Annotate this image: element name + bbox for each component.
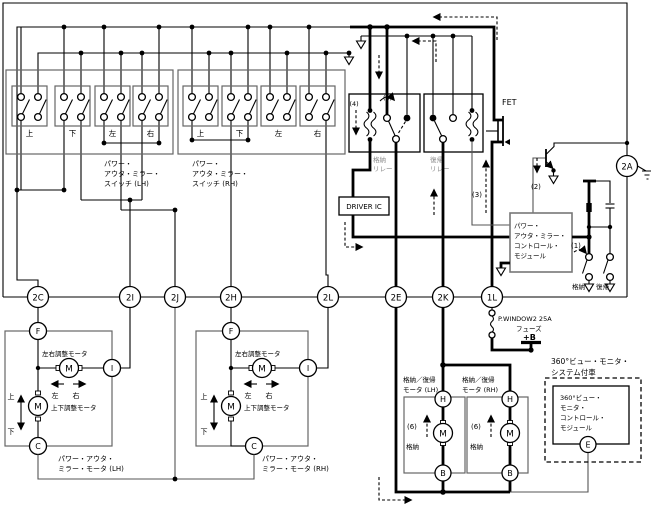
ret-lh-motor-symbol: M — [439, 430, 447, 440]
monitor-terminal-e: E — [585, 441, 590, 450]
store-return-switch-circuit: (1) 格納 復帰 — [571, 181, 615, 292]
mirror-lh-ud-label: 上下調整モータ — [51, 403, 97, 412]
mirror-rh-ud-label: 上下調整モータ — [244, 403, 290, 412]
module-name-1: パワー・ — [514, 222, 540, 230]
power-outer-mirror-wiring-diagram: 上 下 左 右 パワー・ アウタ・ミラー・ スイッチ (LH) 上 下 左 右 … — [0, 0, 651, 507]
mirror-rh-terminal-c: C — [251, 442, 257, 451]
wiring-diagram-page: 上 下 左 右 パワー・ アウタ・ミラー・ スイッチ (LH) 上 下 左 右 … — [0, 0, 651, 507]
swrh-right-label: 右 — [314, 128, 322, 138]
connector-2h: 2H — [225, 294, 237, 304]
plus-b-label: +B — [523, 333, 536, 342]
transistor-circuit: (2) — [531, 141, 629, 213]
mirror-rh-lr-motor-symbol: M — [258, 365, 266, 375]
annotation-3: (3) — [472, 191, 482, 199]
connector-2k: 2K — [438, 294, 449, 304]
swlh-right-label: 右 — [147, 128, 155, 138]
fet-circuit: FET — [486, 98, 517, 310]
annotation-6-lh: (6) — [407, 423, 417, 431]
mirror-lh-left-label: 左 — [52, 391, 59, 400]
ret-rh-motor-symbol: M — [506, 430, 514, 440]
swlh-name-3: スイッチ (LH) — [104, 180, 149, 188]
mirror-lh-name-1: パワー・アウタ・ — [58, 454, 114, 463]
swlh-name-1: パワー・ — [104, 160, 132, 168]
swlh-down-label: 下 — [69, 129, 77, 138]
store-switch-label: 格納 — [572, 282, 585, 291]
fuse-type-label: フューズ — [516, 324, 542, 333]
fet-label: FET — [502, 98, 517, 107]
power-outer-mirror-switch-lh: 上 下 左 右 パワー・ アウタ・ミラー・ スイッチ (LH) — [6, 70, 173, 188]
mirror-lh-terminal-i: I — [111, 364, 113, 373]
return-relay-label-1: 復帰 — [430, 155, 444, 164]
store-relay: (4) (5) 格納 リレー — [349, 94, 420, 173]
monitor-name-1: 360°ビュー・ — [560, 393, 602, 402]
monitor-name-2: モニタ・ — [560, 403, 586, 412]
connector-2e: 2E — [391, 294, 402, 304]
mirror-rh-up-label: 上 — [201, 392, 208, 401]
power-outer-mirror-switch-rh: 上 下 左 右 パワー・ アウタ・ミラー・ スイッチ (RH) — [178, 70, 345, 188]
store-return-motor-lh: H M B (6) 格納 格納／復帰 モータ (LH) — [403, 375, 465, 481]
connector-2c: 2C — [32, 294, 43, 304]
power-outer-mirror-motor-lh: M M F I C 左右調整モータ 左 右 上下調整モータ 上 下 パワー・アウ… — [5, 308, 130, 474]
monitor-name-4: モジュール — [560, 424, 593, 432]
mirror-lh-down-label: 下 — [8, 428, 15, 436]
connector-2i: 2I — [126, 294, 134, 304]
ret-rh-name-2: モータ (RH) — [462, 385, 498, 394]
monitor-note-2: システム付車 — [551, 367, 596, 377]
driver-ic: DRIVER IC — [339, 197, 389, 215]
mirror-lh-name-2: ミラー・モータ (LH) — [58, 464, 124, 473]
swrh-name-3: スイッチ (RH) — [192, 180, 238, 188]
swrh-name-2: アウタ・ミラー・ — [192, 169, 248, 178]
mirror-lh-terminal-c: C — [35, 442, 41, 451]
annotation-4: (4) — [350, 100, 359, 108]
ret-lh-store-label: 格納 — [406, 442, 419, 451]
mirror-lh-lr-motor-symbol: M — [65, 365, 73, 375]
swrh-down-label: 下 — [236, 129, 244, 138]
driver-ic-label: DRIVER IC — [346, 203, 382, 211]
swrh-left-label: 左 — [275, 128, 283, 138]
ret-lh-terminal-b: B — [440, 469, 446, 478]
swlh-left-label: 左 — [109, 128, 117, 138]
monitor-name-3: コントロール・ — [560, 414, 606, 422]
mirror-rh-ud-motor-symbol: M — [227, 403, 235, 413]
connector-2a: 2A — [621, 163, 632, 173]
mirror-rh-name-1: パワー・アウタ・ — [262, 454, 318, 463]
mirror-rh-terminal-f: F — [229, 327, 234, 336]
mirror-lh-ud-motor-symbol: M — [34, 403, 42, 413]
monitor-note-1: 360°ビュー・モニタ・ — [551, 357, 629, 366]
annotation-5: (5) — [383, 94, 392, 102]
power-outer-mirror-control-module: パワー・ アウタ・ミラー・ コントロール・ モジュール — [497, 213, 573, 276]
connector-1l: 1L — [487, 294, 497, 304]
mirror-lh-up-label: 上 — [8, 392, 15, 401]
mirror-lh-lr-label: 左右調整モータ — [42, 349, 88, 358]
swrh-up-label: 上 — [197, 129, 205, 138]
ret-rh-store-label: 格納 — [470, 442, 483, 451]
ret-rh-terminal-b: B — [507, 469, 513, 478]
ret-rh-terminal-h: H — [507, 395, 513, 404]
ret-rh-name-1: 格納／復帰 — [462, 375, 495, 384]
mirror-rh-right-label: 右 — [266, 391, 273, 400]
return-switch-label: 復帰 — [596, 282, 610, 291]
mirror-rh-down-label: 下 — [201, 428, 208, 436]
mirror-rh-lr-label: 左右調整モータ — [235, 349, 281, 358]
mirror-lh-right-label: 右 — [73, 391, 80, 400]
swlh-name-2: アウタ・ミラー・ — [104, 169, 160, 178]
mirror-rh-terminal-i: I — [307, 364, 309, 373]
swrh-name-1: パワー・ — [192, 160, 220, 168]
mirror-rh-name-2: ミラー・モータ (RH) — [262, 464, 329, 473]
store-relay-label-1: 格納 — [373, 155, 386, 164]
return-relay-label-2: リレー — [430, 165, 450, 173]
annotation-1: (1) — [571, 242, 581, 250]
ret-lh-name-1: 格納／復帰 — [403, 375, 436, 384]
pwindow-fuse: P.WINDOW2 25A フューズ +B — [489, 310, 552, 353]
module-name-2: アウタ・ミラー・ — [514, 231, 566, 240]
module-name-4: モジュール — [514, 252, 547, 260]
connector-2j: 2J — [171, 294, 179, 304]
power-outer-mirror-motor-rh: M M F I C 左右調整モータ 左 右 上下調整モータ 上 下 パワー・アウ… — [196, 308, 329, 474]
ret-lh-terminal-h: H — [440, 395, 446, 404]
swlh-up-label: 上 — [26, 129, 34, 138]
mirror-lh-terminal-f: F — [36, 327, 41, 336]
connector-2l: 2L — [323, 294, 333, 304]
annotation-2: (2) — [531, 183, 541, 191]
module-name-3: コントロール・ — [514, 242, 560, 250]
annotation-6-rh: (6) — [471, 423, 481, 431]
mirror-rh-left-label: 左 — [245, 391, 252, 400]
ret-lh-name-2: モータ (LH) — [403, 385, 438, 394]
store-return-motor-rh: H M B (6) 格納 格納／復帰 モータ (RH) — [462, 375, 528, 481]
view-monitor-section: 360°ビュー・モニタ・ システム付車 360°ビュー・ モニタ・ コントロール… — [545, 357, 641, 462]
fuse-name-label: P.WINDOW2 25A — [498, 315, 552, 323]
store-relay-label-2: リレー — [373, 165, 393, 173]
